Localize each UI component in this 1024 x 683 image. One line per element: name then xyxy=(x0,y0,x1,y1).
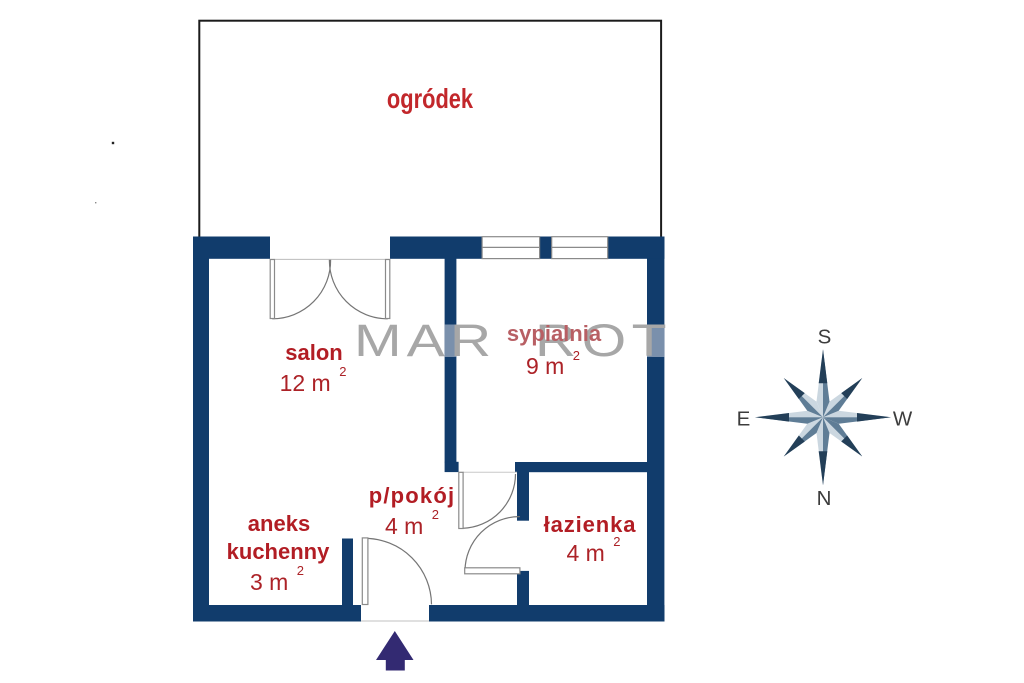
svg-text:W: W xyxy=(893,408,913,431)
svg-text:N: N xyxy=(817,487,832,510)
svg-text:S: S xyxy=(818,326,832,349)
svg-text:E: E xyxy=(737,408,751,431)
